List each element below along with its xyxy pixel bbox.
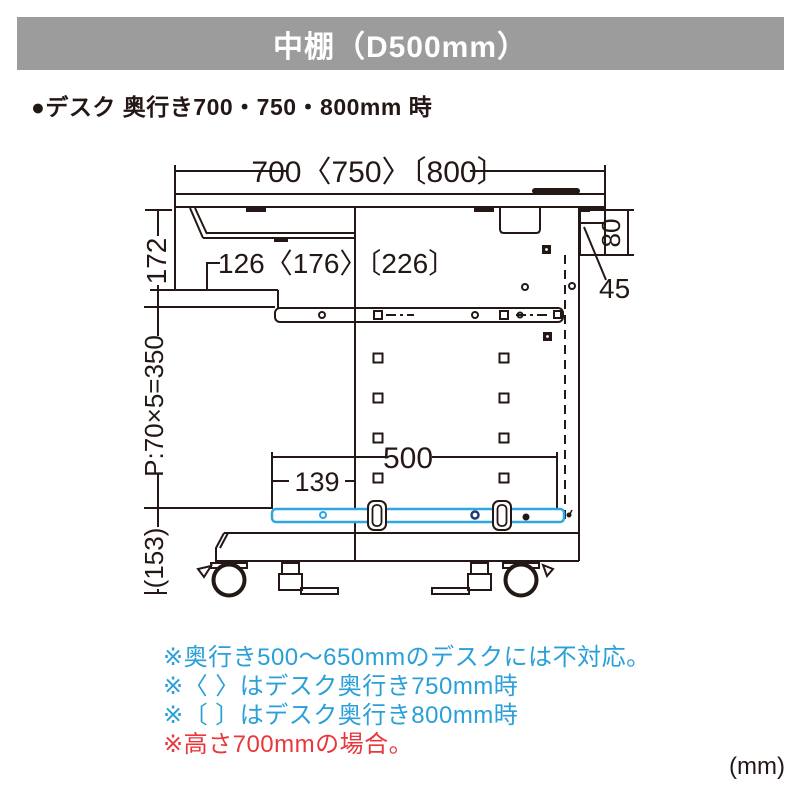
unit-label: (mm) <box>660 753 785 781</box>
footnote-2: ※〈 〉はデスク奥行き750mm時 <box>163 672 651 701</box>
dim-label-caster-height: (153) <box>139 528 169 589</box>
bumper-marks <box>246 210 590 240</box>
dim-rear-beam: 80 45 <box>580 210 634 304</box>
fasteners <box>522 245 575 341</box>
dim-top-width: 700〈750〉〔800〕 <box>175 156 605 193</box>
foot-right <box>432 563 491 594</box>
dim-label-top-width: 700〈750〉〔800〕 <box>251 156 506 189</box>
dim-label-upper-height: 172 <box>141 238 172 285</box>
footnote-4: ※高さ700mmの場合。 <box>163 730 651 759</box>
footnote-3: ※〔 〕はデスク奥行き800mm時 <box>163 701 651 730</box>
under-desk-bracket <box>500 207 540 233</box>
dim-label-shelf-depth: 500 <box>383 442 433 475</box>
dim-tray-inset: 126〈176〉〔226〕 <box>206 248 456 290</box>
dim-label-rear-beam-depth: 45 <box>599 273 630 304</box>
caster-left <box>198 563 247 596</box>
dim-label-tray-inset: 126〈176〉〔226〕 <box>218 248 456 279</box>
footnotes: ※奥行き500〜650mmのデスクには不対応。 ※〈 〉はデスク奥行き750mm… <box>163 643 651 759</box>
shelf-clamp-left <box>368 501 386 530</box>
foot-left <box>279 563 338 594</box>
shelf-clamp-right <box>493 501 511 530</box>
dim-label-shelf-front-offset: 139 <box>294 467 339 497</box>
cable-grommet <box>532 188 580 194</box>
footnote-1: ※奥行き500〜650mmのデスクには不対応。 <box>163 643 651 672</box>
keyboard-tray <box>190 208 355 238</box>
upper-rail <box>275 308 563 322</box>
page: 中棚（D500mm） ●デスク 奥行き700・750・800mm 時 700〈7… <box>0 0 800 800</box>
caster-right <box>503 563 553 596</box>
desk-top <box>175 188 605 207</box>
dim-shelf: 500 139 <box>272 442 557 509</box>
middle-shelf <box>272 501 572 530</box>
base-frame <box>216 533 578 561</box>
dim-label-pitch: P:70×5=350 <box>139 335 169 477</box>
dim-label-rear-beam-height: 80 <box>596 219 626 248</box>
